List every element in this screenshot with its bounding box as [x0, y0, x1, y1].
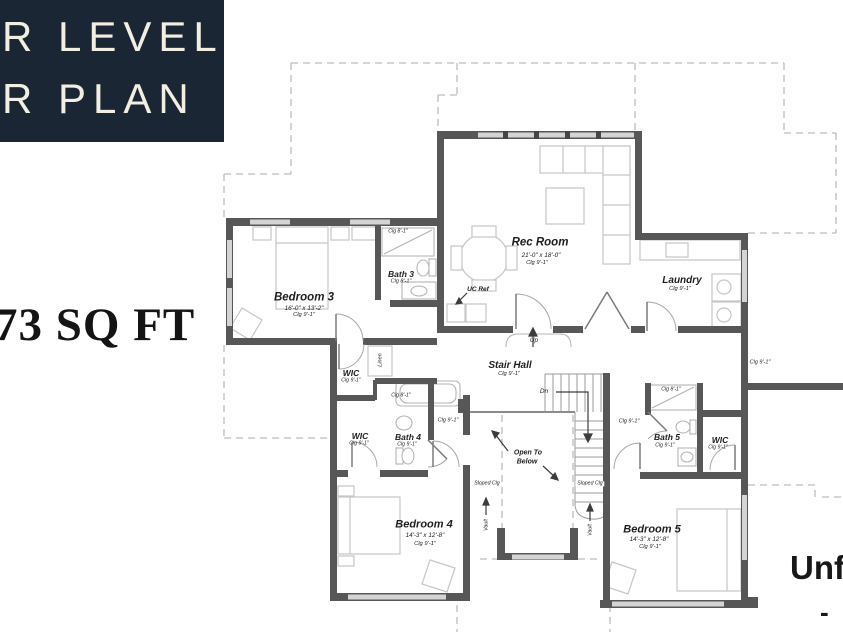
unfinished-label-line2: - — [820, 597, 829, 628]
room-dims-bedroom4: 14'-3" x 12'-8" — [406, 533, 445, 539]
room-label-bedroom4: Bedroom 4 — [395, 520, 452, 531]
room-label-bedroom5: Bedroom 5 — [623, 525, 680, 536]
room-clg-laundry: Clg 9'-1" — [669, 287, 691, 293]
unfinished-label-line1: Unfi — [790, 549, 843, 587]
clg-label-hall-right: Clg 9'-1" — [619, 419, 640, 425]
roof-outline-dashes — [224, 63, 843, 632]
floor-plan-page: Rec Room 21'-0" x 18'-0" Clg 9'-1" Laund… — [0, 0, 843, 632]
room-dims-rec-room: 21'-0" x 18'-0" — [522, 253, 561, 259]
clg-label-bath5-shower: Clg 8'-1" — [661, 387, 681, 392]
room-label-bath5: Bath 5 — [654, 433, 680, 442]
vault-label-left: Vault — [484, 519, 489, 531]
vault-arrow-left — [483, 498, 489, 515]
room-clg-stair-hall: Clg 9'-1" — [498, 372, 520, 378]
square-footage-label: 73 SQ FT — [0, 298, 195, 352]
title-line2: R PLAN — [2, 78, 196, 120]
clg-label-bath3-shower: Clg 8'-1" — [388, 229, 408, 234]
vault-label-right: Vault — [588, 524, 593, 536]
clg-label-east-hall: Clg 9'-1" — [750, 360, 771, 366]
room-label-wic-lower: WIC — [352, 432, 369, 441]
room-label-rec-room: Rec Room — [512, 237, 569, 249]
title-line1: R LEVEL — [2, 16, 224, 58]
room-label-wic-right: WIC — [712, 436, 729, 445]
room-clg-rec-room: Clg 9'-1" — [526, 261, 548, 267]
sloped-clg-label-stairs: Sloped Clg — [575, 481, 604, 486]
clg-label-bath4-tub: Clg 8'-1" — [391, 393, 411, 398]
room-label-bath4: Bath 4 — [395, 433, 421, 442]
room-dims-bedroom5: 14'-3" x 12'-8" — [630, 537, 669, 543]
room-clg-bedroom4: Clg 9'-1" — [414, 542, 436, 548]
room-label-stair-hall: Stair Hall — [488, 361, 531, 371]
title-block: R LEVEL R PLAN — [0, 0, 224, 142]
room-clg-wic-lower: Clg 9'-1" — [349, 441, 369, 446]
room-label-bath3: Bath 3 — [388, 270, 414, 279]
room-clg-bath5: Clg 9'-1" — [655, 443, 675, 448]
clg-label-hall-left: Clg 9'-1" — [438, 418, 459, 424]
dn-label: Dn — [540, 389, 548, 396]
room-clg-wic-upper: Clg 9'-1" — [341, 378, 361, 383]
uc-ref-leader — [456, 293, 467, 304]
room-clg-bath3: Clg 8'-1" — [391, 279, 412, 285]
linen-label: Linen — [378, 353, 384, 366]
room-clg-bath4: Clg 9'-1" — [397, 442, 417, 447]
walls — [226, 131, 843, 608]
up-label: Up — [530, 338, 538, 345]
room-label-laundry: Laundry — [662, 276, 701, 286]
open-to-below-label-line1: Open To — [514, 450, 542, 457]
uc-ref-label: UC Ref — [467, 287, 489, 294]
room-clg-bedroom5: Clg 9'-1" — [639, 545, 661, 551]
open-to-below-label-line2: Below — [517, 459, 538, 466]
room-clg-wic-right: Clg 9'-1" — [708, 445, 728, 450]
room-label-bedroom3: Bedroom 3 — [274, 292, 334, 304]
room-clg-bedroom3: Clg 9'-1" — [293, 313, 315, 319]
room-label-wic-upper: WIC — [343, 369, 360, 378]
sloped-clg-label-left: Sloped Clg — [474, 481, 499, 486]
